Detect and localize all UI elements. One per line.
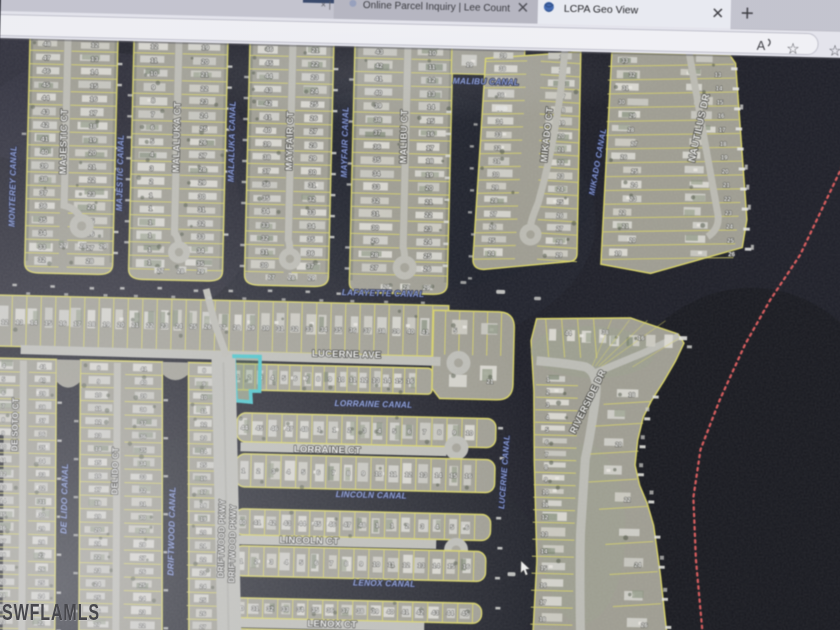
svg-text:LCPA Geo View: LCPA Geo View — [564, 3, 639, 17]
svg-text:☆: ☆ — [786, 41, 800, 58]
svg-text:× |: × | — [321, 0, 331, 10]
svg-text:A: A — [757, 38, 766, 53]
svg-text:☆: ☆ — [828, 43, 840, 60]
